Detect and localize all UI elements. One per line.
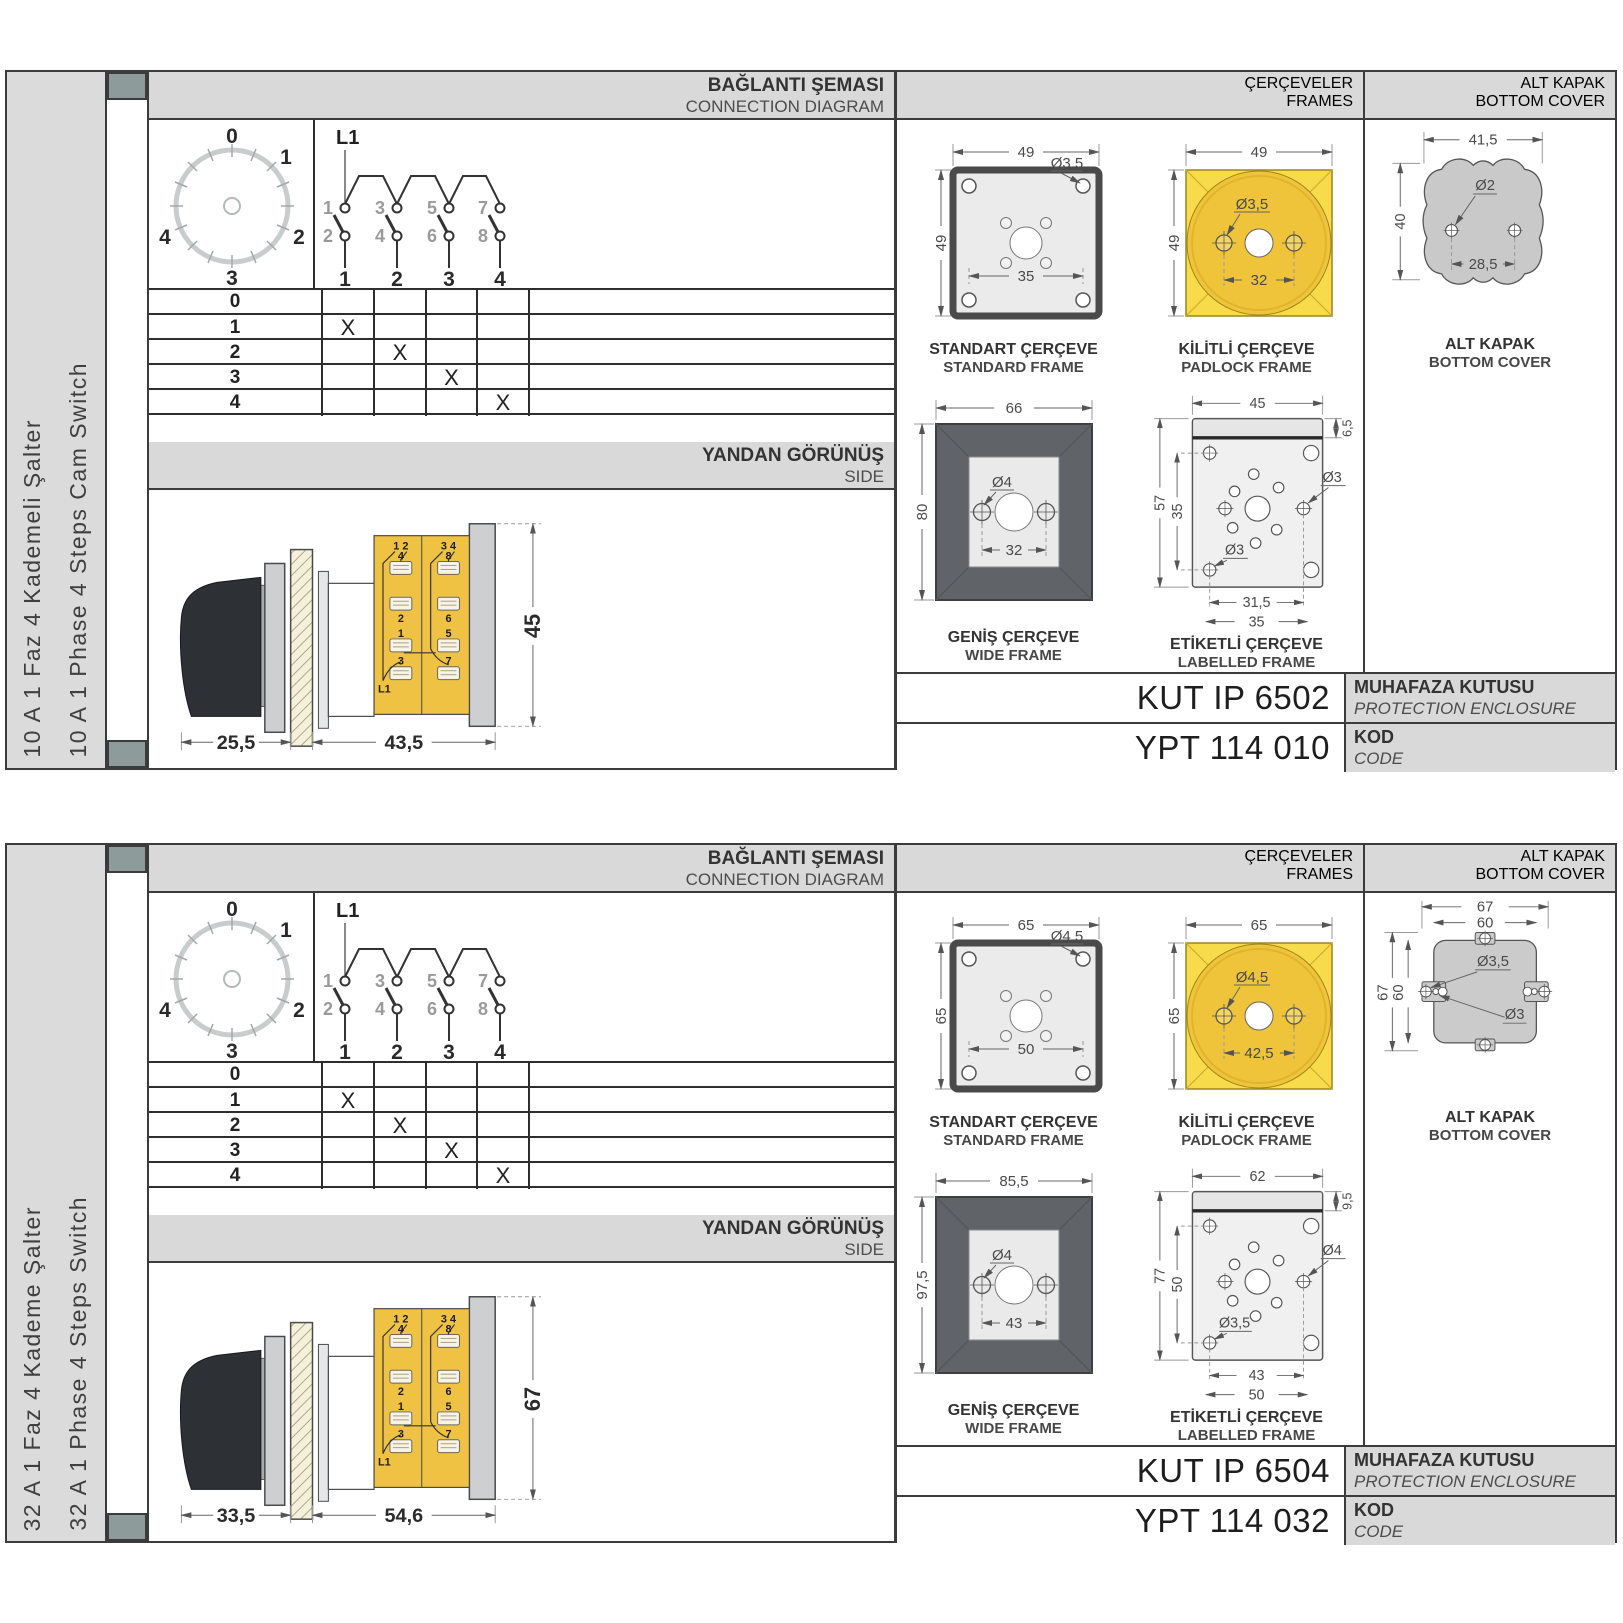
code-label-tr: KOD [1354, 726, 1607, 749]
dim-inner: 32 [1005, 542, 1022, 559]
switch-1: 1 [339, 268, 351, 288]
enclosure-labels: MUHAFAZA KUTUSU PROTECTION ENCLOSURE [1344, 1447, 1615, 1495]
side-view: 1 2 3 4 4 2 1 3 8 6 5 7 L1 25,5 43,5 [149, 490, 894, 772]
terminal-label: 6 [445, 1386, 451, 1398]
rotary-dial-drawing: 0 1 2 3 4 [149, 120, 313, 288]
side-view-header: YANDAN GÖRÜNÜŞ SIDE [149, 1215, 894, 1263]
mark-cell [321, 1063, 373, 1086]
caption-tr: ALT KAPAK [1429, 1109, 1551, 1127]
dim-width: 65 [1017, 917, 1034, 934]
terminal-label: 1 [398, 1401, 404, 1413]
connection-header-tr: BAĞLANTI ŞEMASI [149, 848, 884, 870]
mark-cell [425, 1113, 476, 1139]
cover-body: 67 60 67 60 Ø3,5 Ø3 ALT KAPAK BOTTOM COV… [1365, 893, 1615, 1445]
wide-frame-drawing: Ø4 66 80 32 [906, 388, 1122, 628]
terminal-label: 5 [445, 1401, 451, 1413]
dim-height: 65 [1166, 1008, 1183, 1025]
dim-hole: Ø3,5 [1235, 196, 1268, 213]
dim-width: 49 [1017, 144, 1034, 161]
code-value: YPT 114 032 [897, 1497, 1344, 1545]
dim-body-depth: 43,5 [385, 732, 424, 754]
frames-header: ÇERÇEVELER FRAMES [897, 72, 1365, 120]
terminal-label: 8 [445, 1324, 451, 1336]
dim-inner-height: 50 [1169, 1277, 1185, 1293]
cover-caption: ALT KAPAK BOTTOM COVER [1429, 1109, 1551, 1145]
dial-pos-1: 1 [280, 146, 292, 169]
dial-cell: 0 1 2 3 4 [149, 893, 315, 1061]
dial-cell: 0 1 2 3 4 [149, 120, 315, 288]
labelled-frame-caption: ETİKETLİ ÇERÇEVE LABELLED FRAME [1170, 1409, 1323, 1445]
dim-outer-width: 67 [1476, 900, 1492, 916]
cover-header: ALT KAPAK BOTTOM COVER [1365, 72, 1615, 120]
caption-en: PADLOCK FRAME [1178, 1132, 1314, 1150]
enclosure-value: KUT IP 6502 [897, 674, 1344, 722]
caption-en: WIDE FRAME [948, 1420, 1080, 1438]
code-row: YPT 114 010 KOD CODE [897, 722, 1615, 772]
product-title-strip: 32 A 1 Faz 4 Kademe Şalter 32 A 1 Phase … [5, 843, 107, 1543]
contact-bot-2: 2 [323, 226, 333, 246]
mark-cell [321, 290, 373, 313]
dim-height: 49 [933, 235, 950, 252]
empty-cell [528, 1088, 894, 1114]
caption-tr: GENİŞ ÇERÇEVE [948, 629, 1080, 647]
wide-frame-cell: Ø4 66 80 32 GENİŞ ÇERÇEVE WIDE FRAME [897, 386, 1130, 672]
contact-diagram-drawing: L1 1 [315, 893, 894, 1061]
mark-cell [373, 290, 425, 313]
contact-bot-4: 4 [375, 226, 385, 246]
row-label: 3 [149, 365, 321, 391]
bottom-cover-drawing: 41,5 40 Ø2 28,5 [1363, 120, 1618, 335]
connection-panel: BAĞLANTI ŞEMASI CONNECTION DIAGRAM [147, 70, 896, 770]
cover-header: ALT KAPAK BOTTOM COVER [1365, 845, 1615, 893]
connection-panel: BAĞLANTI ŞEMASI CONNECTION DIAGRAM [147, 843, 896, 1543]
dim-handle-depth: 33,5 [217, 1505, 256, 1527]
code-labels: KOD CODE [1344, 1497, 1615, 1545]
dial-pos-2: 2 [293, 226, 305, 249]
mark-cell [476, 1113, 528, 1139]
padlock-frame-caption: KİLİTLİ ÇERÇEVE PADLOCK FRAME [1178, 1114, 1314, 1150]
side-view: 1 2 3 4 4 2 1 3 8 6 5 7 L1 33,5 54,6 [149, 1263, 894, 1545]
table-row: 0 [149, 290, 894, 315]
row-label: 4 [149, 1163, 321, 1189]
section-32a-switch: 32 A 1 Faz 4 Kademe Şalter 32 A 1 Phase … [5, 843, 1617, 1543]
standard-frame-caption: STANDART ÇERÇEVE STANDARD FRAME [929, 341, 1098, 377]
product-title-en: 32 A 1 Phase 4 Steps Switch [65, 1196, 92, 1531]
rotary-dial-drawing: 0 1 2 3 4 [149, 893, 313, 1061]
dim-height: 45 [520, 614, 545, 638]
mark-cell [373, 390, 425, 416]
dim-inner: 28,5 [1468, 257, 1497, 273]
mark-cell [425, 390, 476, 416]
side-view-header: YANDAN GÖRÜNÜŞ SIDE [149, 442, 894, 490]
side-header-en: SIDE [149, 1240, 884, 1259]
dim-inner-width: 60 [1476, 916, 1492, 932]
standard-frame-cell: 65 Ø4,5 65 50 STANDART ÇERÇEVE STANDARD … [897, 893, 1130, 1159]
contact-top-7: 7 [478, 971, 488, 991]
frames-header-en: FRAMES [897, 866, 1353, 884]
dim-inner: 50 [1017, 1041, 1034, 1058]
row-label: 1 [149, 315, 321, 341]
bridge-links [345, 949, 500, 977]
step-table: 0 1 X 2 X [149, 1063, 894, 1188]
dim-width: 62 [1249, 1169, 1265, 1185]
row-label: 3 [149, 1138, 321, 1164]
table-row: 3 X [149, 365, 894, 390]
dial-pos-2: 2 [293, 999, 305, 1022]
frames-and-cover-panel: ÇERÇEVELER FRAMES ALT KAPAK BOTTOM COVER [895, 843, 1617, 1543]
dial-pos-0: 0 [226, 898, 238, 921]
frames-header-tr: ÇERÇEVELER [897, 848, 1353, 866]
dim-tab: 6,5 [1340, 419, 1354, 436]
mark-cell [321, 1113, 373, 1139]
bridge-links [345, 176, 500, 204]
terminal-label: 4 [398, 1324, 404, 1336]
contact-top-3: 3 [375, 971, 385, 991]
contact-bot-6: 6 [427, 226, 437, 246]
mark-cell [373, 1163, 425, 1189]
switch-4: 4 [494, 1041, 506, 1061]
terminal-label: 7 [445, 1429, 451, 1441]
contact-cell: L1 1 [315, 120, 894, 288]
dim-hole-right: Ø3 [1322, 470, 1341, 486]
mark-cell: X [321, 315, 373, 341]
spine-column [107, 843, 147, 1543]
standard-frame-drawing: 65 Ø4,5 65 50 [909, 895, 1119, 1113]
empty-cell [528, 290, 894, 313]
mark-cell [373, 1138, 425, 1164]
empty-cell [528, 315, 894, 341]
handle [180, 577, 260, 716]
dim-inner: 32 [1250, 272, 1267, 289]
dim-body-depth: 54,6 [385, 1505, 424, 1527]
frames-header: ÇERÇEVELER FRAMES [897, 845, 1365, 893]
dim-hole: Ø4 [991, 474, 1011, 491]
contact-bot-2: 2 [323, 999, 333, 1019]
wide-frame-drawing: Ø4 85,5 97,5 43 [906, 1161, 1122, 1401]
labelled-frame-drawing: 45 6,5 57 35 Ø3 Ø3 31,5 [1133, 388, 1361, 635]
connection-diagram: 0 1 2 3 4 L1 [149, 893, 894, 1063]
feed-label: L1 [336, 900, 359, 922]
side-view-drawing: 1 2 3 4 4 2 1 3 8 6 5 7 L1 33,5 54,6 [149, 1263, 894, 1543]
terminal-label: 3 [398, 1429, 404, 1441]
side-view-drawing: 1 2 3 4 4 2 1 3 8 6 5 7 L1 25,5 43,5 [149, 490, 894, 770]
terminal-label: 4 [398, 551, 404, 563]
terminal-label: 6 [445, 613, 451, 625]
terminal-label: 3 [398, 656, 404, 668]
dim-hole-right: Ø4 [1322, 1243, 1341, 1259]
switch-3: 3 [443, 268, 455, 288]
mark-cell [425, 340, 476, 366]
caption-tr: GENİŞ ÇERÇEVE [948, 1402, 1080, 1420]
labelled-frame-caption: ETİKETLİ ÇERÇEVE LABELLED FRAME [1170, 636, 1323, 672]
caption-tr: ETİKETLİ ÇERÇEVE [1170, 1409, 1323, 1427]
table-row: 4 X [149, 1163, 894, 1188]
padlock-frame-caption: KİLİTLİ ÇERÇEVE PADLOCK FRAME [1178, 341, 1314, 377]
connection-header-en: CONNECTION DIAGRAM [149, 97, 884, 116]
dial-pos-3: 3 [226, 267, 238, 288]
dim-hole-left: Ø3,5 [1218, 1316, 1249, 1332]
frames-and-cover-panel: ÇERÇEVELER FRAMES ALT KAPAK BOTTOM COVER [895, 70, 1617, 770]
panel-cross-section [291, 550, 313, 747]
table-row: 4 X [149, 390, 894, 415]
mark-cell [373, 365, 425, 391]
labelled-frame-cell: 62 9,5 77 50 Ø4 Ø3,5 43 [1130, 1159, 1363, 1445]
mark-cell [476, 315, 528, 341]
dial-pos-3: 3 [226, 1040, 238, 1061]
padlock-frame-cell: Ø4,5 65 65 42,5 KİLİTLİ ÇERÇEVE PADLOCK … [1130, 893, 1363, 1159]
mark-cell: X [425, 1138, 476, 1164]
row-label: 1 [149, 1088, 321, 1114]
terminal-label: 2 [398, 1386, 404, 1398]
connection-header: BAĞLANTI ŞEMASI CONNECTION DIAGRAM [149, 72, 894, 120]
padlock-frame-cell: Ø3,5 49 49 32 KİLİTLİ ÇERÇEVE PADLOCK FR… [1130, 120, 1363, 386]
mark-cell [373, 1088, 425, 1114]
mark-cell: X [321, 1088, 373, 1114]
dial-pos-0: 0 [226, 125, 238, 148]
cover-caption: ALT KAPAK BOTTOM COVER [1429, 336, 1551, 372]
row-label: 0 [149, 1063, 321, 1086]
dim-height: 67 [520, 1387, 545, 1411]
dim-height: 49 [1166, 235, 1183, 252]
dim-hole: Ø4,5 [1235, 969, 1268, 986]
dim-outer-height: 67 [1375, 984, 1391, 1000]
code-label-en: CODE [1354, 1522, 1607, 1542]
cover-header-tr: ALT KAPAK [1365, 75, 1605, 93]
mark-cell [425, 1163, 476, 1189]
empty-cell [528, 390, 894, 416]
switch-4: 4 [494, 268, 506, 288]
caption-en: WIDE FRAME [948, 647, 1080, 665]
mark-cell: X [373, 340, 425, 366]
row-label: 2 [149, 340, 321, 366]
dim-width: 41,5 [1468, 133, 1497, 149]
mark-cell [425, 1088, 476, 1114]
feed-label: L1 [336, 127, 359, 149]
enclosure-label-en: PROTECTION ENCLOSURE [1354, 699, 1607, 719]
terminal-label: 2 [398, 613, 404, 625]
caption-tr: KİLİTLİ ÇERÇEVE [1178, 341, 1314, 359]
dial-pos-4: 4 [159, 999, 171, 1022]
dim-height: 40 [1393, 213, 1409, 229]
product-title-tr: 32 A 1 Faz 4 Kademe Şalter [19, 1206, 46, 1531]
mark-cell: X [425, 365, 476, 391]
handle [180, 1350, 260, 1489]
mark-cell [321, 340, 373, 366]
dim-inner: 43 [1005, 1315, 1022, 1332]
spine-square-top [107, 845, 147, 873]
caption-tr: STANDART ÇERÇEVE [929, 341, 1098, 359]
mark-cell [321, 1138, 373, 1164]
cover-header-en: BOTTOM COVER [1365, 93, 1605, 111]
mark-cell [476, 365, 528, 391]
mark-cell [373, 1063, 425, 1086]
wide-frame-cell: Ø4 85,5 97,5 43 GENİŞ ÇERÇEVE WIDE FRAME [897, 1159, 1130, 1445]
dim-inner-height: 60 [1391, 984, 1407, 1000]
cover-header-tr: ALT KAPAK [1365, 848, 1605, 866]
contact-top-1: 1 [323, 198, 333, 218]
caption-en: LABELLED FRAME [1170, 1427, 1323, 1445]
dim-hole-small: Ø3 [1504, 1007, 1524, 1023]
frames-body: 49 Ø3,5 49 35 STANDART ÇERÇEVE STANDARD … [897, 120, 1365, 672]
caption-en: PADLOCK FRAME [1178, 359, 1314, 377]
terminal-feed-label: L1 [378, 1457, 391, 1469]
table-row: 3 X [149, 1138, 894, 1163]
dim-height: 65 [933, 1008, 950, 1025]
caption-en: STANDARD FRAME [929, 359, 1098, 377]
table-row: 1 X [149, 1088, 894, 1113]
contact-bot-8: 8 [478, 999, 488, 1019]
enclosure-label-tr: MUHAFAZA KUTUSU [1354, 1449, 1607, 1472]
contact-bot-4: 4 [375, 999, 385, 1019]
dim-handle-depth: 25,5 [217, 732, 256, 754]
code-label-tr: KOD [1354, 1499, 1607, 1522]
wide-frame-caption: GENİŞ ÇERÇEVE WIDE FRAME [948, 1402, 1080, 1438]
connection-header: BAĞLANTI ŞEMASI CONNECTION DIAGRAM [149, 845, 894, 893]
dim-width: 49 [1250, 144, 1267, 161]
spacer [149, 1188, 894, 1215]
side-header-tr: YANDAN GÖRÜNÜŞ [149, 1218, 884, 1240]
dim-height: 77 [1152, 1268, 1168, 1284]
dim-inner-width: 31,5 [1242, 595, 1270, 611]
mark-cell [476, 340, 528, 366]
mark-cell [425, 1063, 476, 1086]
standard-frame-cell: 49 Ø3,5 49 35 STANDART ÇERÇEVE STANDARD … [897, 120, 1130, 386]
caption-en: BOTTOM COVER [1429, 1127, 1551, 1145]
caption-tr: KİLİTLİ ÇERÇEVE [1178, 1114, 1314, 1132]
contact-diagram-drawing: L1 1 [315, 120, 894, 288]
table-row: 2 X [149, 340, 894, 365]
standard-frame-caption: STANDART ÇERÇEVE STANDARD FRAME [929, 1114, 1098, 1150]
empty-cell [528, 1063, 894, 1086]
dim-width: 45 [1249, 396, 1265, 412]
side-header-en: SIDE [149, 467, 884, 486]
empty-cell [528, 1138, 894, 1164]
contact-top-7: 7 [478, 198, 488, 218]
contact-top-1: 1 [323, 971, 333, 991]
enclosure-label-tr: MUHAFAZA KUTUSU [1354, 676, 1607, 699]
row-label: 4 [149, 390, 321, 416]
dim-width: 65 [1250, 917, 1267, 934]
terminal-label: 1 [398, 628, 404, 640]
mark-cell [476, 1063, 528, 1086]
spine-square-bottom [107, 740, 147, 768]
code-label-en: CODE [1354, 749, 1607, 769]
labelled-frame-drawing: 62 9,5 77 50 Ø4 Ø3,5 43 [1133, 1161, 1361, 1408]
dim-hole: Ø4 [991, 1247, 1011, 1264]
frames-body: 65 Ø4,5 65 50 STANDART ÇERÇEVE STANDARD … [897, 893, 1365, 1445]
code-row: YPT 114 032 KOD CODE [897, 1495, 1615, 1545]
mark-cell [425, 290, 476, 313]
frames-header-en: FRAMES [897, 93, 1353, 111]
bottom-cover-drawing: 67 60 67 60 Ø3,5 Ø3 [1363, 893, 1618, 1108]
mark-cell [321, 1163, 373, 1189]
product-title-strip: 10 A 1 Faz 4 Kademeli Şalter 10 A 1 Phas… [5, 70, 107, 770]
caption-en: LABELLED FRAME [1170, 654, 1323, 672]
dim-inner-width: 43 [1248, 1368, 1264, 1384]
dim-hole-big: Ø3,5 [1476, 954, 1508, 970]
cover-header-en: BOTTOM COVER [1365, 866, 1605, 884]
table-row: 1 X [149, 315, 894, 340]
padlock-frame-drawing: Ø4,5 65 65 42,5 [1142, 895, 1352, 1113]
caption-tr: ALT KAPAK [1429, 336, 1551, 354]
dial-pos-4: 4 [159, 226, 171, 249]
labelled-frame-cell: 45 6,5 57 35 Ø3 Ø3 31,5 [1130, 386, 1363, 672]
dim-hole: Ø2 [1475, 178, 1495, 194]
product-title-en: 10 A 1 Phase 4 Steps Cam Switch [65, 362, 92, 758]
empty-cell [528, 365, 894, 391]
mark-cell [476, 290, 528, 313]
step-table: 0 1 X 2 X [149, 290, 894, 415]
dim-width: 66 [1005, 400, 1022, 417]
contact-top-5: 5 [427, 971, 437, 991]
dim-inner-height: 35 [1169, 504, 1185, 520]
connection-header-tr: BAĞLANTI ŞEMASI [149, 75, 884, 97]
frames-header-tr: ÇERÇEVELER [897, 75, 1353, 93]
table-row: 0 [149, 1063, 894, 1088]
mark-cell [476, 1088, 528, 1114]
spine-square-top [107, 72, 147, 100]
mark-cell: X [373, 1113, 425, 1139]
dim-height: 97,5 [914, 1270, 931, 1299]
mark-cell [321, 365, 373, 391]
dim-hole: Ø4,5 [1050, 928, 1083, 945]
switch-1: 1 [339, 1041, 351, 1061]
dim-width: 85,5 [999, 1173, 1028, 1190]
mark-cell [476, 1138, 528, 1164]
panel-cross-section [291, 1323, 313, 1520]
code-value: YPT 114 010 [897, 724, 1344, 772]
spacer [149, 415, 894, 442]
section-10a-switch: 10 A 1 Faz 4 Kademeli Şalter 10 A 1 Phas… [5, 70, 1617, 770]
dim-inner: 35 [1017, 268, 1034, 285]
empty-cell [528, 1163, 894, 1189]
switch-3: 3 [443, 1041, 455, 1061]
connection-header-en: CONNECTION DIAGRAM [149, 870, 884, 889]
row-label: 0 [149, 290, 321, 313]
mark-cell: X [476, 1163, 528, 1189]
contact-top-5: 5 [427, 198, 437, 218]
mark-cell [321, 390, 373, 416]
enclosure-row: KUT IP 6504 MUHAFAZA KUTUSU PROTECTION E… [897, 1445, 1615, 1495]
standard-frame-drawing: 49 Ø3,5 49 35 [909, 122, 1119, 340]
terminal-label: 5 [445, 628, 451, 640]
terminal-label: 7 [445, 656, 451, 668]
spine-column [107, 70, 147, 770]
dim-tab: 9,5 [1340, 1192, 1354, 1209]
contact-cell: L1 1 [315, 893, 894, 1061]
contact-bot-8: 8 [478, 226, 488, 246]
empty-cell [528, 1113, 894, 1139]
dim-hole: Ø3,5 [1050, 155, 1083, 172]
dim-outer-width: 35 [1248, 614, 1264, 630]
caption-en: BOTTOM COVER [1429, 354, 1551, 372]
side-header-tr: YANDAN GÖRÜNÜŞ [149, 445, 884, 467]
product-title-tr: 10 A 1 Faz 4 Kademeli Şalter [19, 419, 46, 758]
enclosure-value: KUT IP 6504 [897, 1447, 1344, 1495]
switch-2: 2 [391, 268, 403, 288]
mark-cell [425, 315, 476, 341]
enclosure-row: KUT IP 6502 MUHAFAZA KUTUSU PROTECTION E… [897, 672, 1615, 722]
padlock-frame-drawing: Ø3,5 49 49 32 [1142, 122, 1352, 340]
cover-body: 41,5 40 Ø2 28,5 ALT KAPAK BOTTOM COVER [1365, 120, 1615, 672]
terminal-feed-label: L1 [378, 684, 391, 696]
table-row: 2 X [149, 1113, 894, 1138]
empty-cell [528, 340, 894, 366]
dim-height: 57 [1152, 495, 1168, 511]
contact-top-3: 3 [375, 198, 385, 218]
dial-pos-1: 1 [280, 919, 292, 942]
enclosure-label-en: PROTECTION ENCLOSURE [1354, 1472, 1607, 1492]
